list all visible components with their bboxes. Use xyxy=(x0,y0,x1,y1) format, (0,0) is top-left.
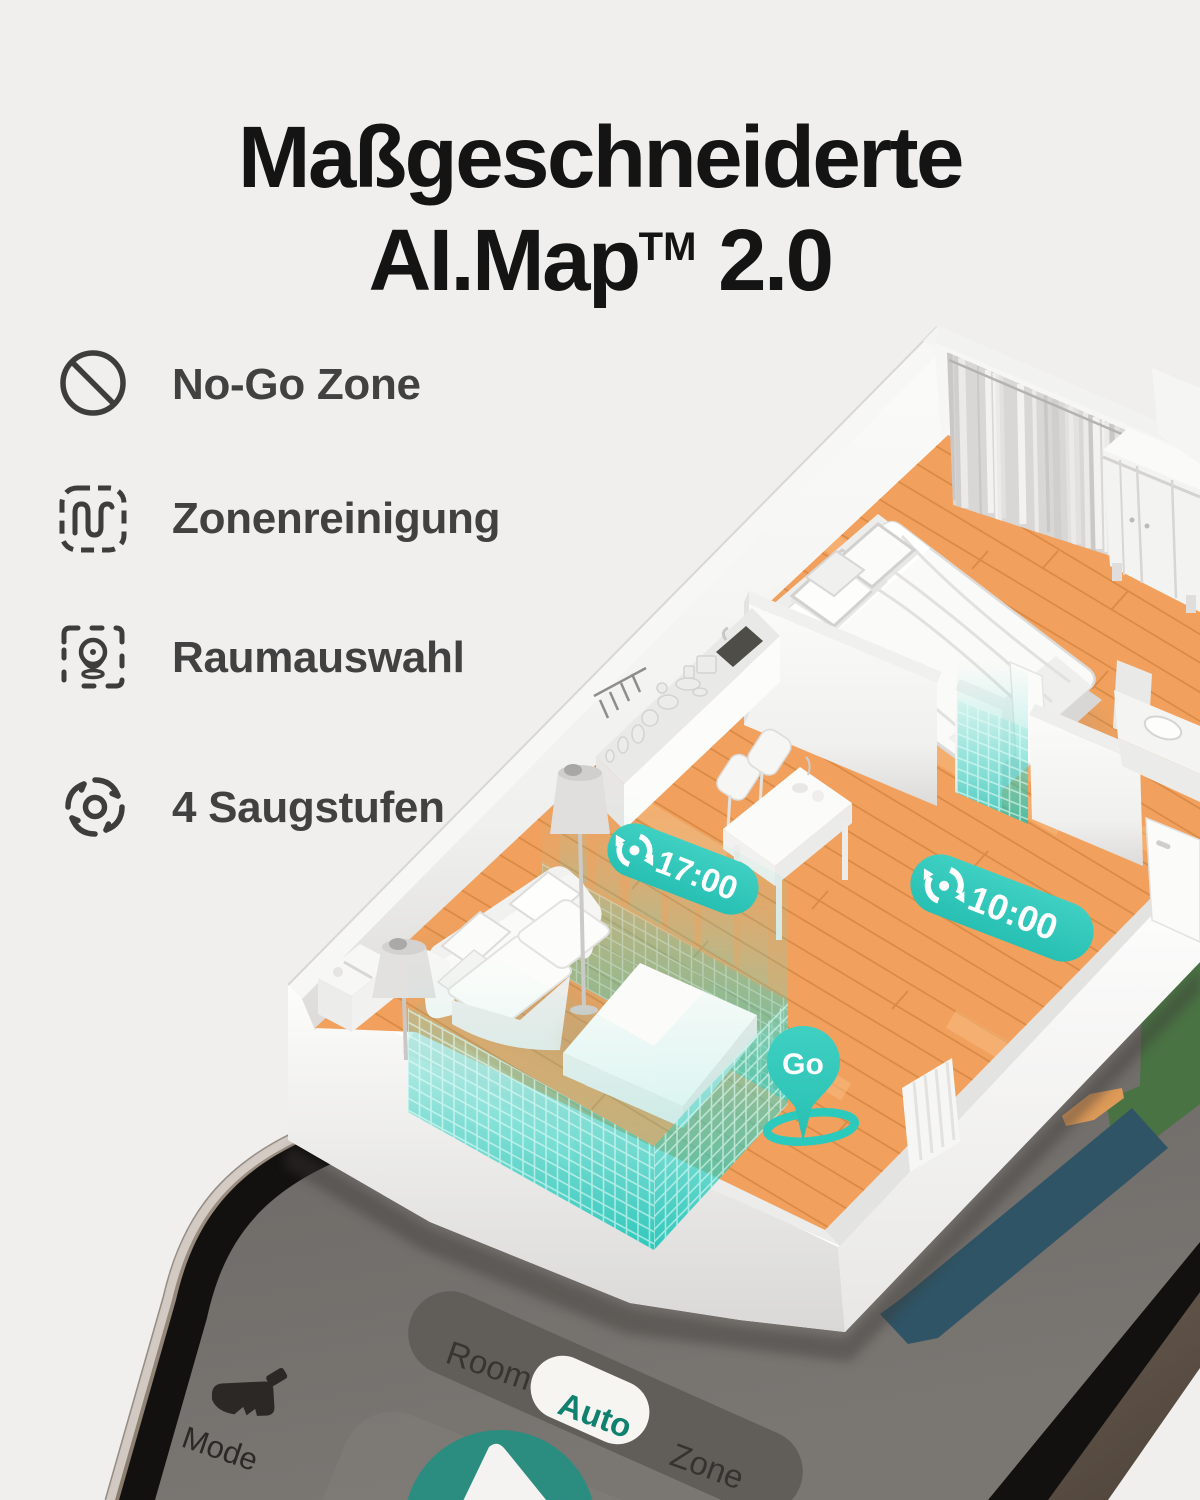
svg-text:Go: Go xyxy=(782,1048,824,1081)
